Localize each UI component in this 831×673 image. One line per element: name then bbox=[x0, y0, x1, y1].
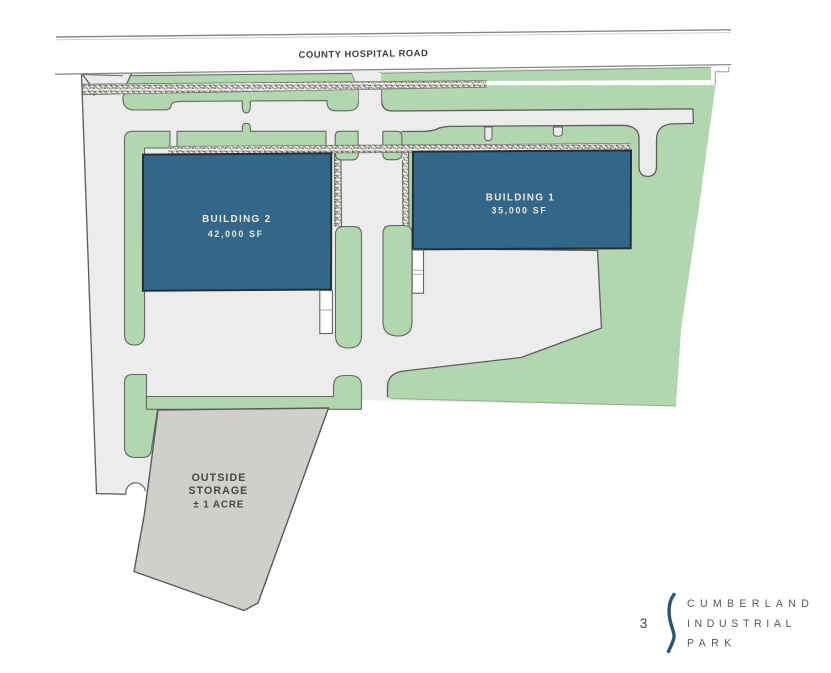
svg-text:CUMBERLAND: CUMBERLAND bbox=[687, 598, 814, 610]
svg-text:± 1 ACRE: ± 1 ACRE bbox=[193, 500, 244, 511]
svg-text:BUILDING 1: BUILDING 1 bbox=[486, 192, 555, 203]
svg-text:STORAGE: STORAGE bbox=[188, 485, 248, 497]
svg-text:OUTSIDE: OUTSIDE bbox=[192, 472, 247, 484]
svg-text:3: 3 bbox=[640, 615, 648, 631]
svg-text:COUNTY HOSPITAL ROAD: COUNTY HOSPITAL ROAD bbox=[299, 47, 429, 60]
svg-text:42,000 SF: 42,000 SF bbox=[208, 229, 264, 239]
svg-text:INDUSTRIAL: INDUSTRIAL bbox=[687, 618, 796, 630]
svg-text:BUILDING 2: BUILDING 2 bbox=[202, 214, 271, 225]
svg-text:PARK: PARK bbox=[687, 637, 737, 649]
svg-text:35,000 SF: 35,000 SF bbox=[492, 206, 548, 216]
